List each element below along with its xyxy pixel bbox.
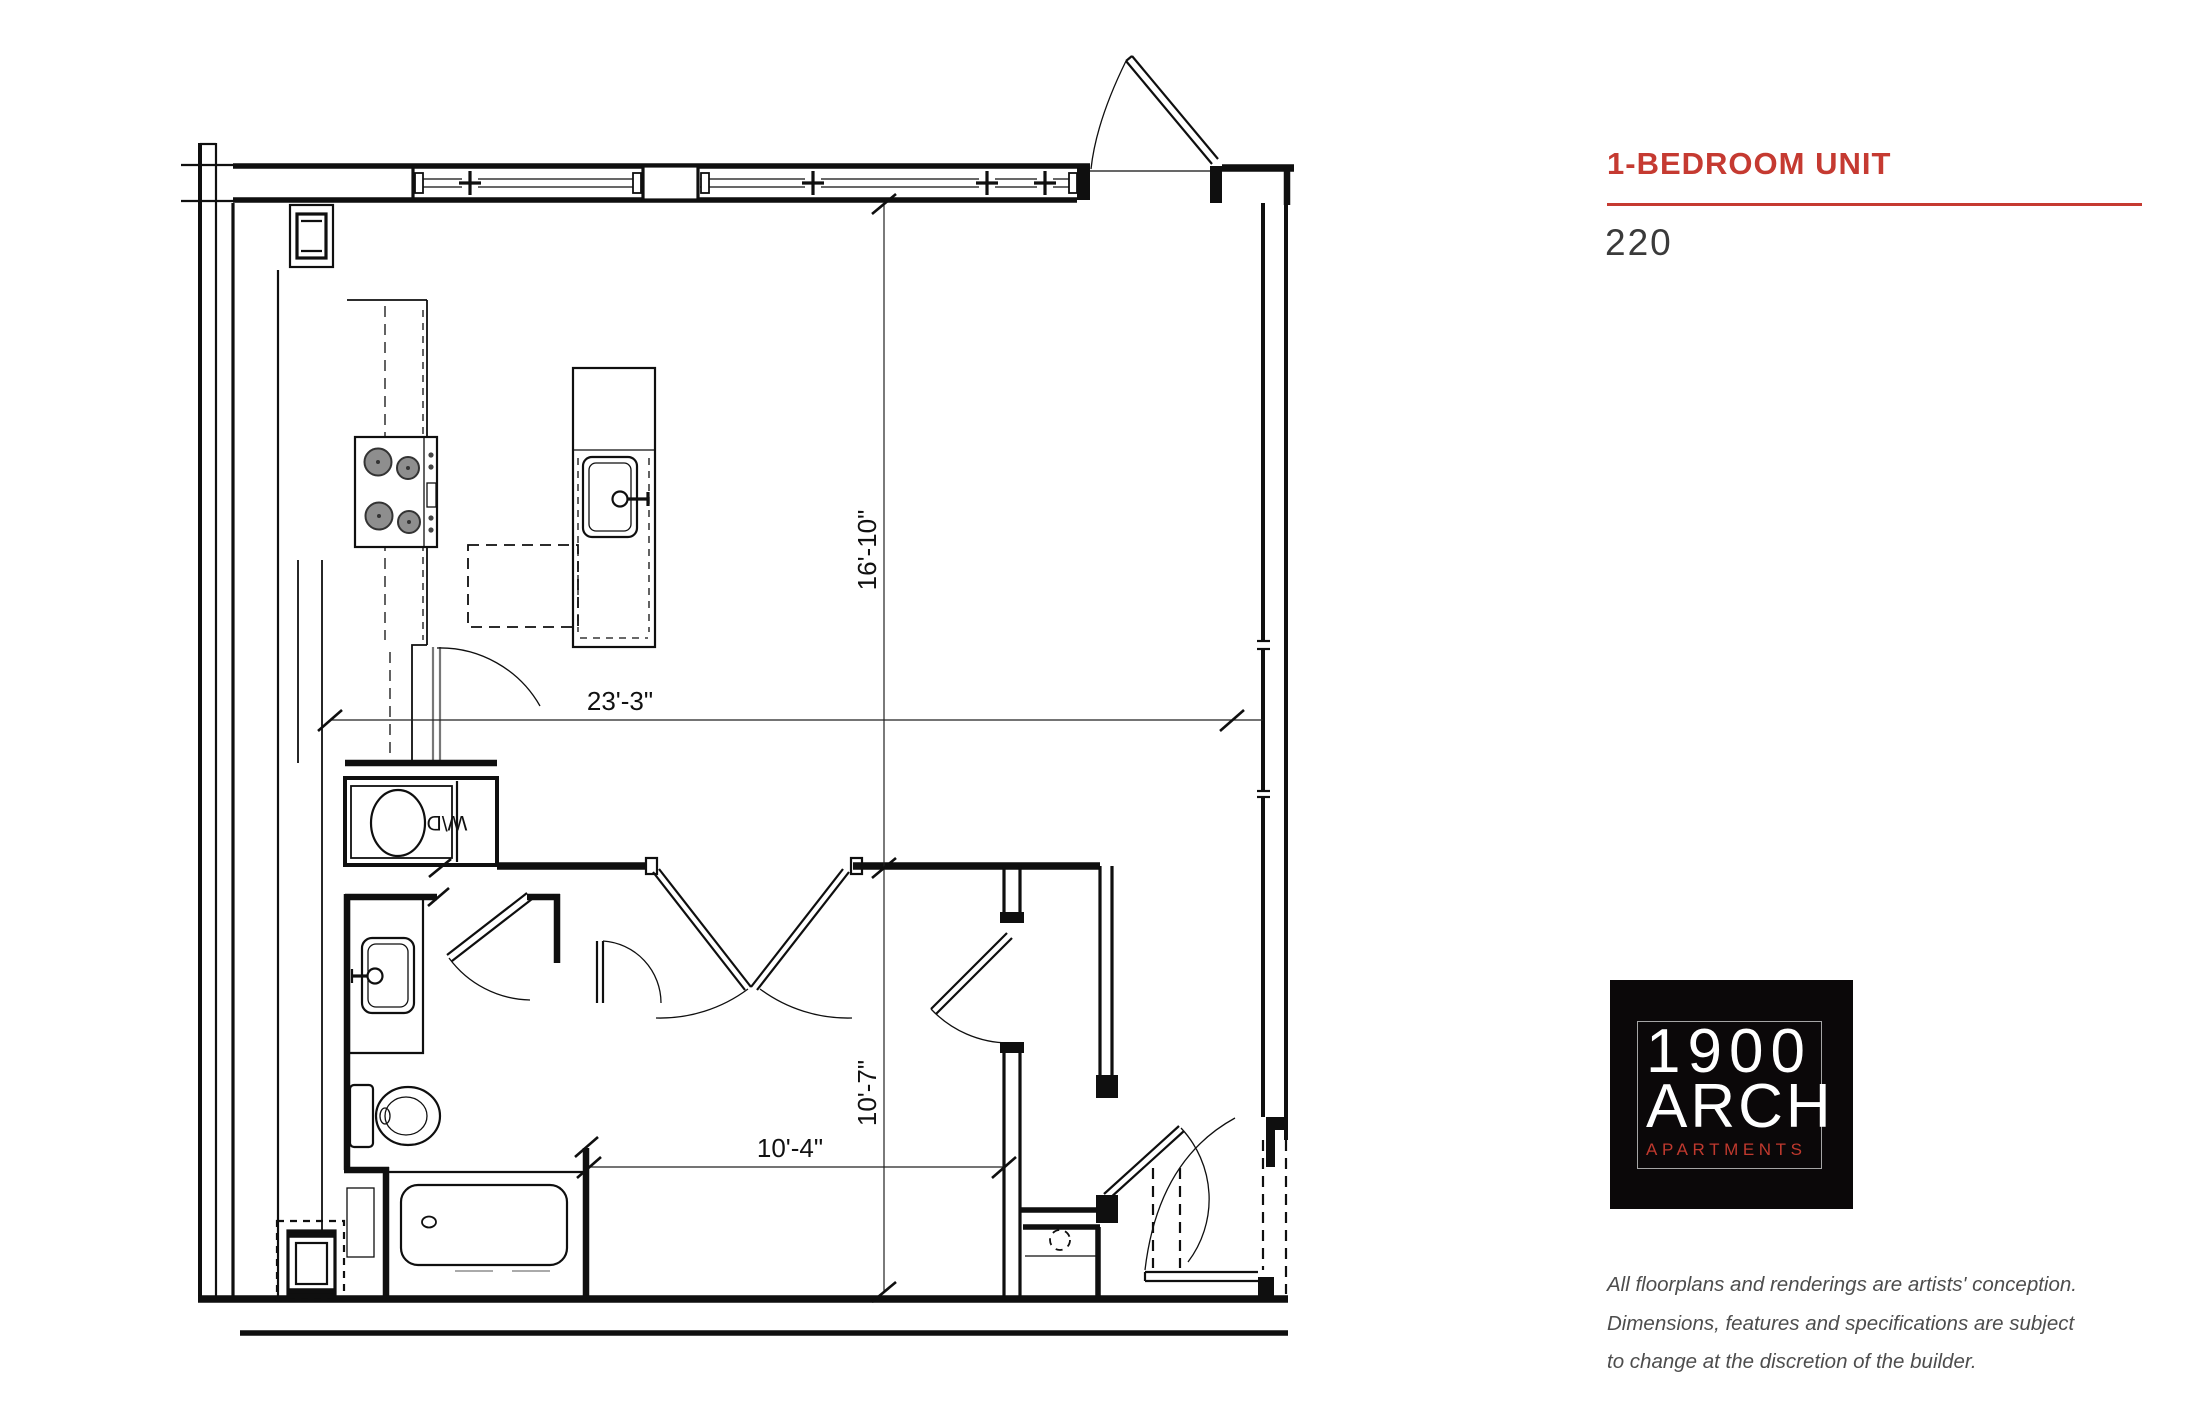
dimension-main-horizontal: 23'-3" <box>587 686 653 716</box>
balcony-door-swing-arc <box>1091 61 1126 169</box>
stove <box>355 437 437 547</box>
vanity-sink <box>349 898 423 1053</box>
refrigerator-dashed <box>468 545 578 627</box>
kitchen-island <box>573 368 655 647</box>
bathtub <box>347 1172 583 1271</box>
kitchen-door <box>433 647 540 760</box>
faucet-icon <box>613 492 628 507</box>
toilet <box>350 1085 440 1147</box>
corridor-dashed-walls <box>1153 1168 1180 1268</box>
dimension-lower-horizontal: 10'-4" <box>757 1133 823 1163</box>
page-title: 1-BEDROOM UNIT <box>1607 146 1891 182</box>
closet-door <box>931 933 1012 1043</box>
column-bottom-left <box>277 1221 344 1300</box>
bedroom-double-doors <box>653 869 852 1018</box>
utility-closet <box>1023 1227 1100 1297</box>
dimension-lower-vertical: 10'-7" <box>852 1060 882 1126</box>
balcony-door <box>1077 56 1218 200</box>
logo-text: 1900 ARCH APARTMENTS <box>1646 1024 1834 1163</box>
unit-number: 220 <box>1605 222 1673 264</box>
dimension-upper-vertical: 16'-10" <box>852 510 882 591</box>
washer-dryer-label: W\D <box>427 811 468 834</box>
vestibule-door <box>1104 1126 1209 1262</box>
window-glazing <box>413 171 1077 195</box>
disclaimer-text: All floorplans and renderings are artist… <box>1607 1266 2187 1382</box>
logo-line-arch: ARCH <box>1646 1080 1834 1134</box>
title-underline <box>1607 203 2142 206</box>
disclaimer-line-2: Dimensions, features and specifications … <box>1607 1305 2187 1344</box>
bathroom-door <box>428 888 532 1000</box>
bathroom <box>344 888 661 1299</box>
water-heater-icon <box>1050 1230 1070 1250</box>
disclaimer-line-1: All floorplans and renderings are artist… <box>1607 1266 2187 1305</box>
structural-columns <box>277 205 344 1300</box>
logo-line-apartments: APARTMENTS <box>1646 1137 1834 1163</box>
brand-logo: 1900 ARCH APARTMENTS <box>1610 980 1853 1209</box>
page-background: W\D <box>0 0 2187 1414</box>
faucet-icon <box>368 969 383 984</box>
entry-door-swing-arc <box>1145 1118 1235 1270</box>
bedroom-east-wall <box>1000 866 1024 1297</box>
window-mullion-icons <box>459 171 1056 195</box>
closet-east-wall <box>1096 866 1118 1223</box>
floorplan-drawing: W\D <box>0 0 2187 1414</box>
disclaimer-line-3: to change at the discretion of the build… <box>1607 1343 2187 1382</box>
laundry-closet: W\D <box>345 763 497 877</box>
hall-door <box>597 941 661 1003</box>
dimension-annotations: 16'-10" 23'-3" 10'-7" 10'-4" <box>318 194 1263 1302</box>
column-top-left <box>290 205 333 267</box>
